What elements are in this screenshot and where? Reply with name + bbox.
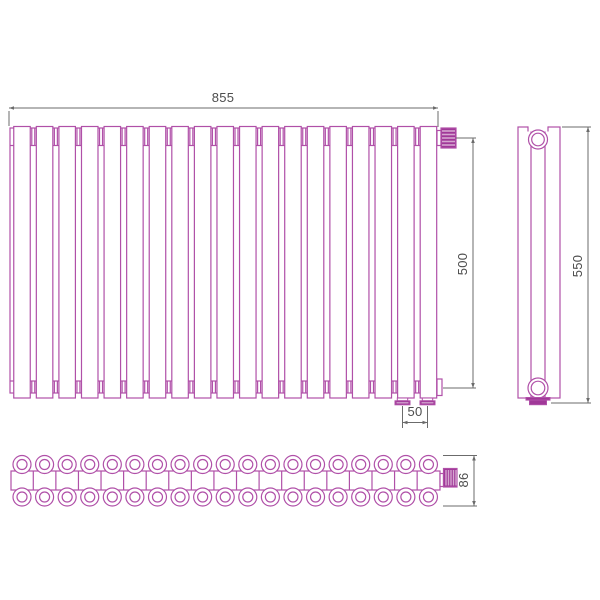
front-view	[10, 127, 456, 405]
dim-connection-spacing-label: 50	[393, 405, 437, 419]
bottom-view	[11, 456, 457, 507]
radiator-line-art	[0, 0, 600, 600]
dim-width-label: 855	[201, 91, 245, 105]
radiator-drawing-canvas: 855 500 550 50 86	[0, 0, 600, 600]
side-view	[518, 122, 560, 405]
dim-front-height-label: 500	[456, 242, 470, 286]
dim-depth-label: 86	[457, 458, 471, 502]
dim-side-height-label: 550	[571, 244, 585, 288]
